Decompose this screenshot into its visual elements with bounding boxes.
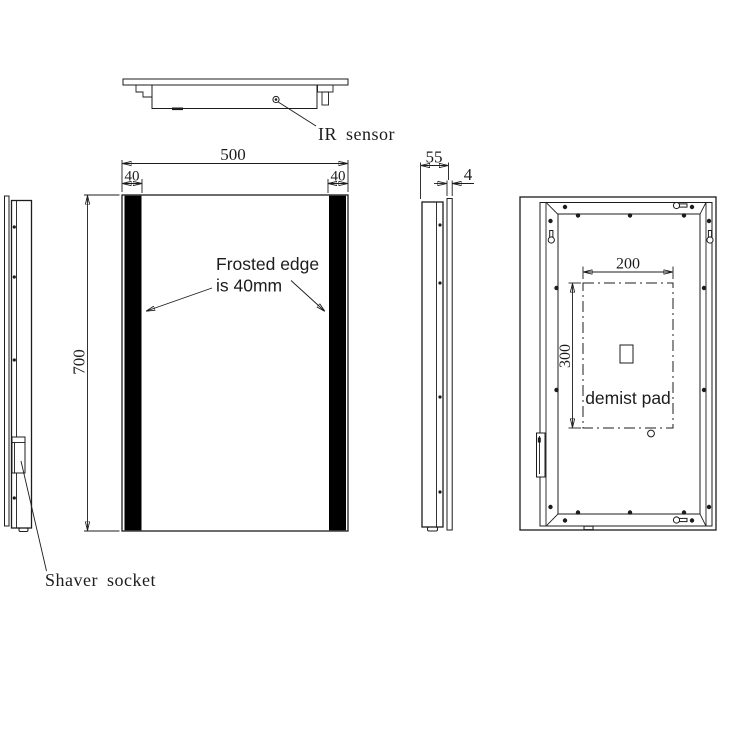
dim-pad-height: 300 — [557, 344, 574, 368]
side-view-cabinet — [422, 202, 443, 527]
demist-pad-window — [620, 345, 633, 363]
left-view-cabinet — [12, 201, 32, 529]
top-view-left-clip — [136, 85, 152, 97]
mirror-technical-drawing: IR sensor 500 40 40 700 Frosted edge is … — [0, 0, 750, 750]
top-view-right-clip-leg — [322, 92, 329, 105]
frosted-edge-label-line1: Frosted edge — [216, 254, 319, 274]
front-view: 500 40 40 700 Frosted edge is 40mm — [70, 145, 349, 531]
side-view-glass — [447, 199, 452, 531]
dim-glass-thickness: 4 — [464, 165, 473, 184]
back-view: demist pad 200 300 — [520, 197, 716, 530]
mirror-outline — [122, 195, 348, 531]
ir-sensor-label: IR sensor — [318, 124, 395, 144]
frosted-strip-left — [125, 196, 142, 531]
frosted-edge-label-line2: is 40mm — [216, 276, 282, 296]
left-view-glass — [5, 196, 10, 526]
top-view-glass-bar — [123, 79, 348, 85]
top-view: IR sensor — [123, 79, 395, 144]
side-view-screw-dots — [438, 223, 441, 493]
back-view-glass-outline — [520, 197, 716, 530]
dim-front-height: 700 — [70, 349, 89, 375]
ir-sensor-dot — [275, 98, 278, 101]
frosted-arrow-left — [147, 288, 213, 311]
frosted-strip-right — [329, 196, 346, 531]
top-view-right-clip — [318, 85, 334, 92]
dim-front-width: 500 — [220, 145, 246, 164]
side-view: 55 4 — [421, 148, 475, 532]
dim-frost-right: 40 — [331, 169, 346, 185]
frame-miter-bottom-right — [700, 514, 705, 525]
dim-depth: 55 — [426, 148, 443, 167]
back-view-bottom-notch — [584, 526, 593, 529]
frame-miter-bottom-left — [547, 514, 558, 525]
frame-miter-top-left — [547, 203, 558, 214]
keyhole-slot-bottom-icon — [673, 517, 687, 523]
ir-sensor-leader-line — [278, 102, 316, 126]
shaver-socket-label: Shaver socket — [45, 570, 156, 590]
frosted-arrow-right — [291, 281, 325, 312]
dim-pad-width: 200 — [616, 256, 640, 273]
back-view-shaver-socket-mark — [538, 438, 541, 443]
back-view-small-hole — [648, 430, 655, 437]
shaver-socket-leader-line — [21, 461, 47, 571]
keyhole-hanger-top-left-icon — [548, 231, 554, 244]
frame-miter-top-right — [700, 203, 705, 214]
dim-frost-left: 40 — [125, 169, 140, 185]
keyhole-slot-top-icon — [673, 202, 687, 208]
demist-pad-label: demist pad — [585, 388, 671, 408]
top-view-cabinet-body — [152, 85, 317, 109]
